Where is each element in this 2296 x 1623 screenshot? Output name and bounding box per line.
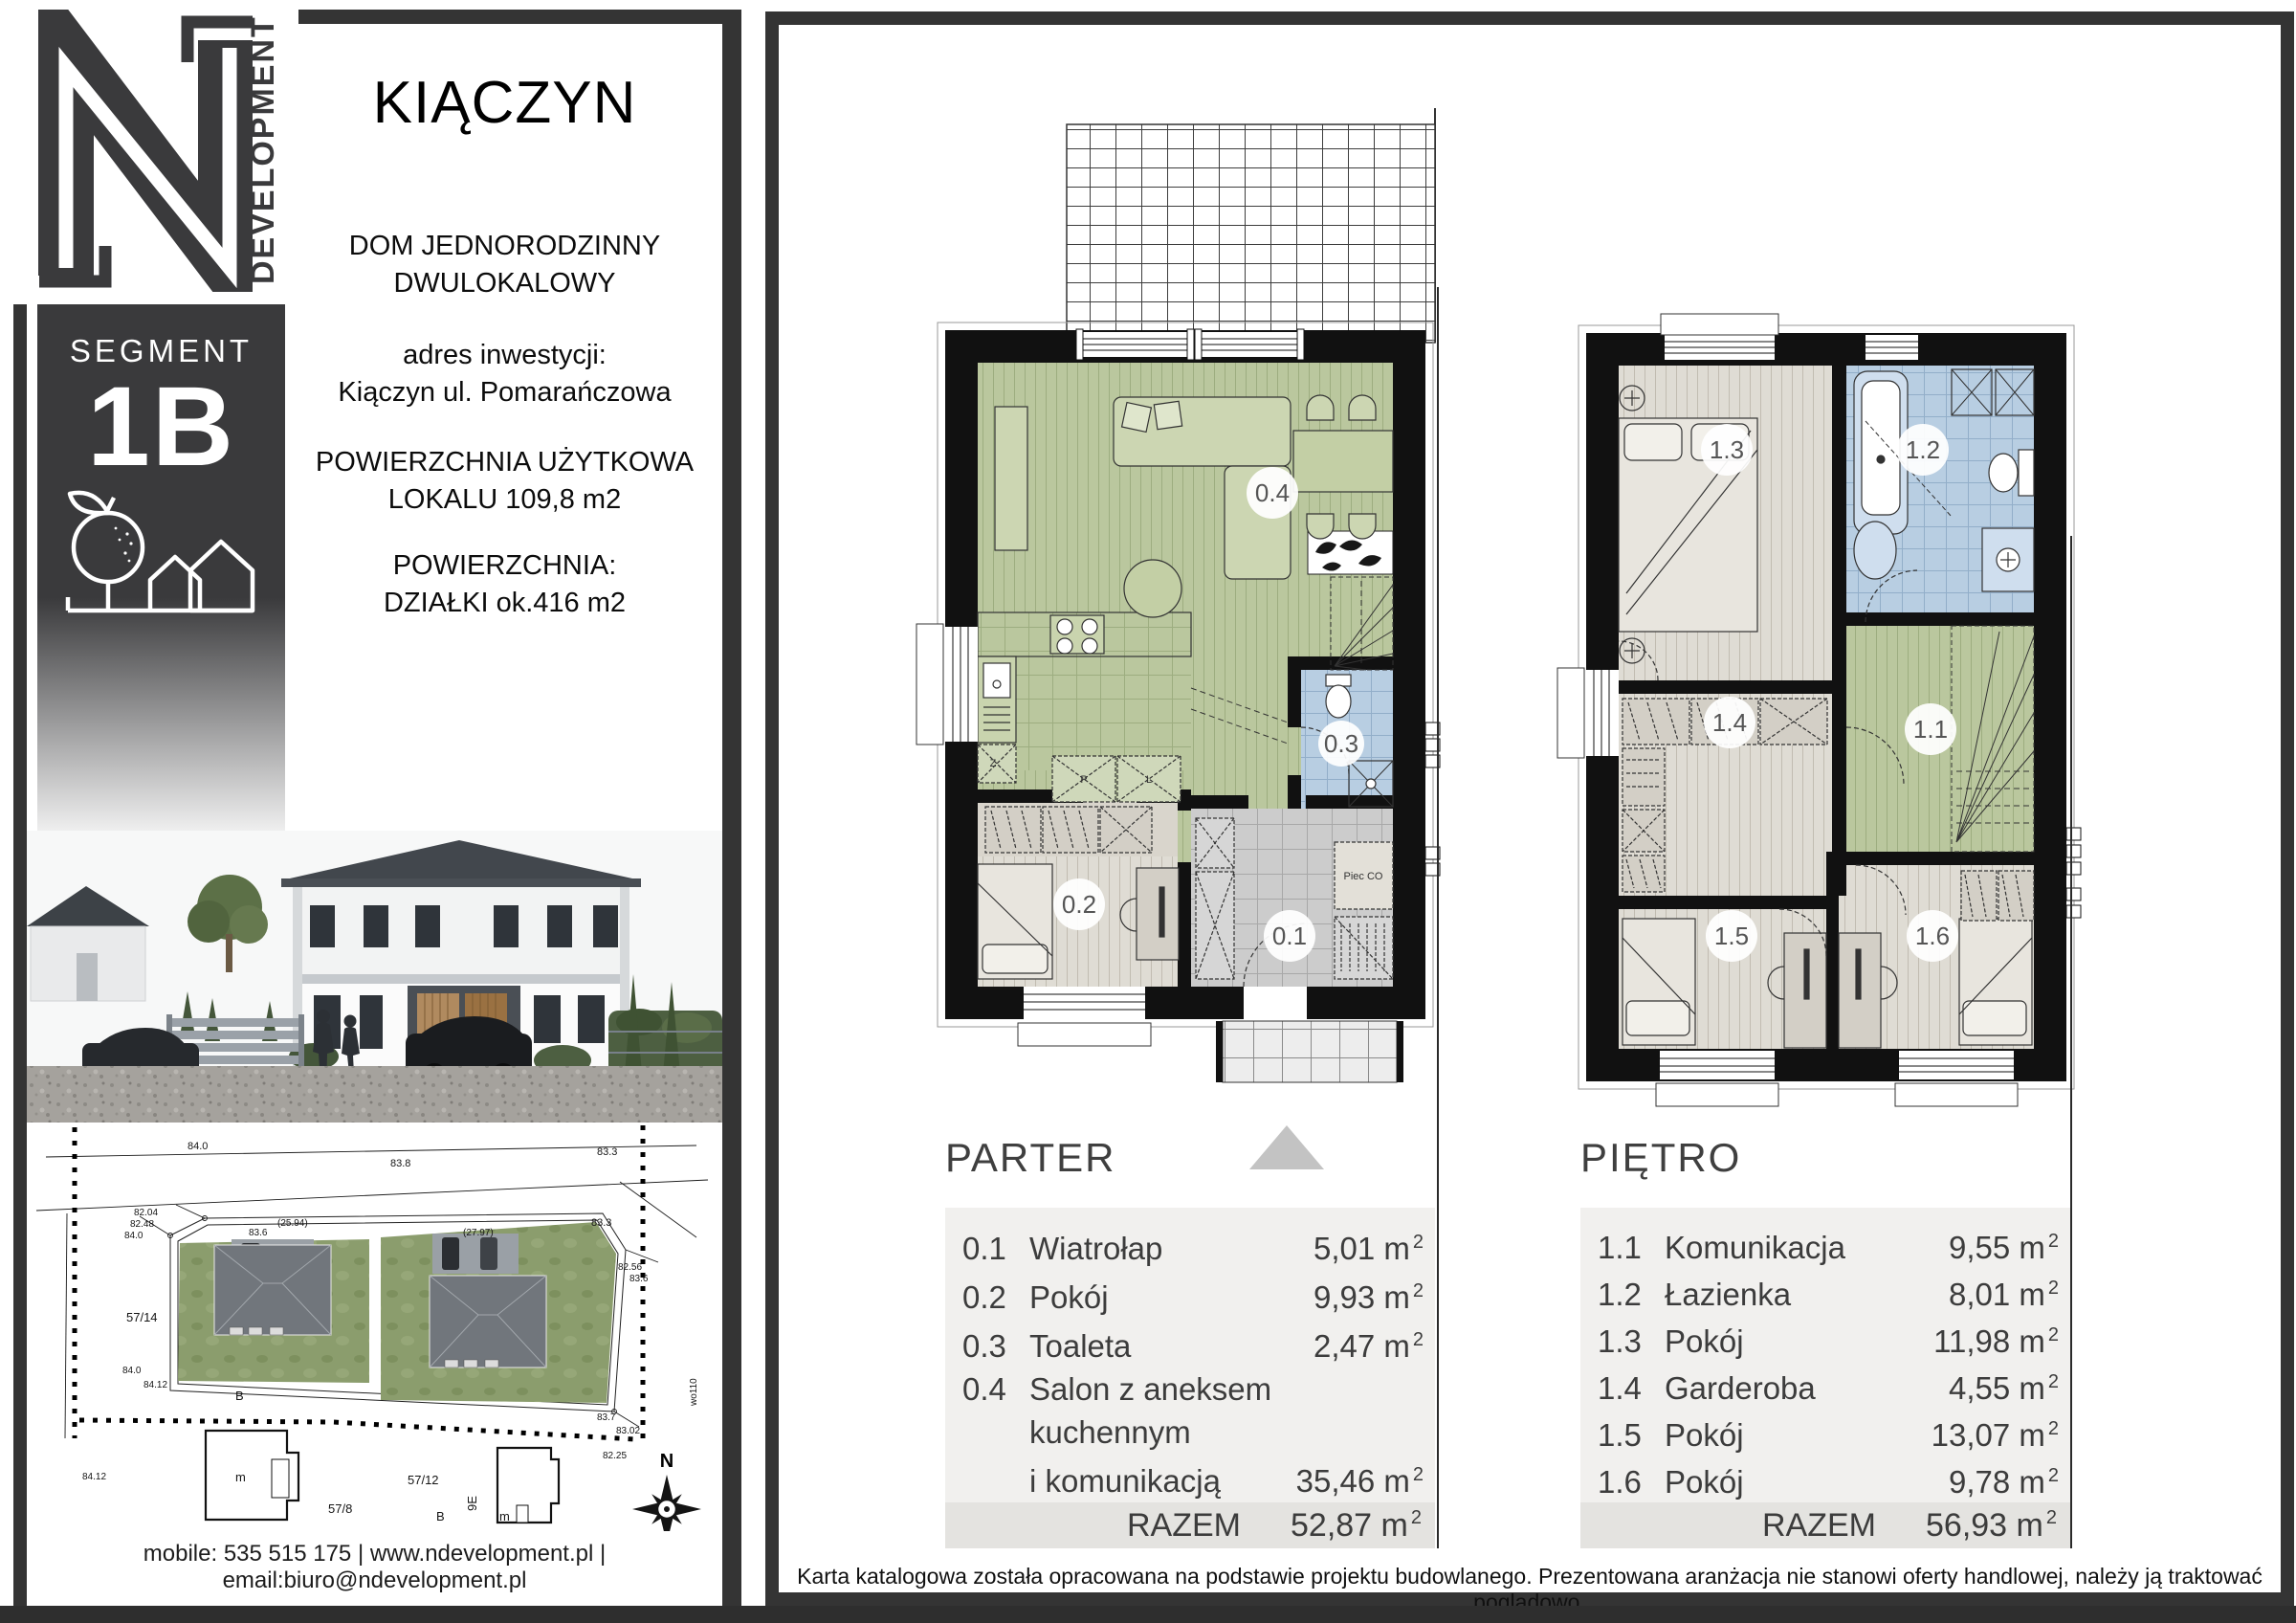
room-row: 0.2 Pokój 9,93 m2 [945,1270,1435,1319]
usable-area: POWIERZCHNIA UŻYTKOWALOKALU 109,8 m2 [287,444,722,519]
room-row: 0.3 Toaleta 2,47 m2 [945,1319,1435,1367]
room-row: i komunikacją 35,46 m2 [945,1454,1435,1502]
svg-text:83.02: 83.02 [616,1426,640,1436]
segment-value: 1B [37,369,285,484]
left-panel-top-border [298,10,741,24]
svg-text:84.0: 84.0 [188,1141,208,1152]
svg-text:83.8: 83.8 [390,1158,410,1169]
svg-text:82.48: 82.48 [130,1219,154,1230]
svg-text:84.12: 84.12 [82,1472,106,1482]
ndevelopment-logo-icon [13,10,253,292]
room-row: 1.6 Pokój 9,78 m2 [1580,1456,2070,1502]
svg-text:0.2: 0.2 [1062,890,1096,919]
svg-text:83.6: 83.6 [249,1228,268,1238]
svg-text:82.56: 82.56 [618,1262,642,1273]
segment-label: SEGMENT [37,304,285,369]
svg-text:Piec CO: Piec CO [1344,871,1383,882]
parter-divider-line [1437,287,1439,1548]
svg-text:84.0: 84.0 [124,1231,143,1241]
svg-text:1.2: 1.2 [1906,435,1940,464]
house-roof-right [430,1276,546,1367]
svg-text:1.5: 1.5 [1714,922,1749,950]
svg-text:83.3: 83.3 [591,1217,611,1229]
svg-text:0.1: 0.1 [1272,922,1307,950]
svg-text:82.04: 82.04 [134,1208,158,1218]
gravel-road [27,1066,722,1123]
building-type: DOM JEDNORODZINNYDWULOKALOWY [287,228,722,302]
svg-text:84.0: 84.0 [122,1366,142,1376]
svg-text:83.3: 83.3 [597,1146,617,1158]
svg-text:1.6: 1.6 [1915,922,1950,950]
svg-text:82.25: 82.25 [603,1451,627,1461]
svg-text:m: m [235,1470,246,1484]
svg-text:L: L [1146,774,1152,786]
north-arrow-icon [1249,1125,1324,1169]
dining-table [1293,431,1393,492]
svg-text:P: P [1080,774,1087,786]
house-roof-left [214,1245,331,1335]
room-row: 1.1 Komunikacja 9,55 m2 [1580,1221,2070,1268]
svg-text:wo110: wo110 [689,1378,699,1407]
room-row: 1.4 Garderoba 4,55 m2 [1580,1362,2070,1409]
room-row: 1.3 Pokój 11,98 m2 [1580,1315,2070,1362]
svg-text:Z: Z [990,758,997,769]
pietro-total-row: RAZEM 56,93 m2 [1580,1502,2070,1548]
svg-text:57/8: 57/8 [328,1501,352,1516]
catalog-card: DEVELOPMENT SEGMENT 1B KIĄCZYN [0,0,2296,1623]
svg-text:83.7: 83.7 [597,1412,616,1423]
segment-badge: SEGMENT 1B [37,304,285,869]
svg-text:(27.97): (27.97) [463,1228,494,1238]
svg-text:57/12: 57/12 [408,1473,439,1487]
left-panel-right-border [722,10,741,1606]
svg-text:B: B [436,1509,445,1523]
svg-text:0.3: 0.3 [1324,729,1358,758]
project-title: KIĄCZYN [287,69,722,137]
parter-label: PARTER [945,1135,1115,1181]
house-photo [27,831,722,1123]
svg-text:84.12: 84.12 [143,1380,167,1390]
investment-address: adres inwestycji:Kiączyn ul. Pomarańczow… [287,337,722,411]
room-row: 1.5 Pokój 13,07 m2 [1580,1409,2070,1456]
room-row: 0.1 Wiatrołap 5,01 m2 [945,1221,1435,1270]
svg-text:1.3: 1.3 [1710,435,1744,464]
site-plan: 84.0 83.8 83.3 82.04 82.48 84.0 (25.94) … [27,1123,722,1531]
floor-plan-pietro: 1.3 1.2 1.4 1.1 1.5 1.6 [1550,306,2124,1139]
entrance-steps [1223,1021,1397,1082]
bottom-strip [0,1606,2296,1623]
terrace-grid [1067,124,1435,343]
logo-wordmark: DEVELOPMENT [245,10,282,291]
pietro-divider-line [2070,536,2072,1548]
room-row: 1.2 Łazienka 8,01 m2 [1580,1268,2070,1315]
svg-text:(25.94): (25.94) [277,1218,308,1229]
left-panel-left-border [13,304,27,1606]
plot-area: POWIERZCHNIA:DZIAŁKI ok.416 m2 [287,547,722,622]
orange-houses-icon [58,484,264,637]
svg-text:1.4: 1.4 [1712,708,1747,737]
svg-text:9E: 9E [465,1496,479,1511]
svg-text:57/14: 57/14 [126,1310,158,1324]
parter-room-list: 0.1 Wiatrołap 5,01 m2 0.2 Pokój 9,93 m2 … [945,1208,1435,1502]
svg-text:B: B [235,1389,244,1403]
parter-total-row: RAZEM 52,87 m2 [945,1502,1435,1548]
svg-text:1.1: 1.1 [1913,715,1948,744]
svg-text:83.6: 83.6 [629,1274,649,1284]
svg-text:0.4: 0.4 [1255,478,1290,507]
room-row: 0.4 Salon z aneksem kuchennym [945,1367,1435,1454]
svg-text:m: m [499,1509,510,1523]
contact-line: mobile: 535 515 175 | www.ndevelopment.p… [27,1541,722,1594]
floor-plan-parter: Z P L [909,53,1483,1096]
svg-text:N: N [660,1451,673,1472]
pietro-room-list: 1.1 Komunikacja 9,55 m2 1.2 Łazienka 8,0… [1580,1208,2070,1502]
pietro-label: PIĘTRO [1580,1135,1741,1181]
